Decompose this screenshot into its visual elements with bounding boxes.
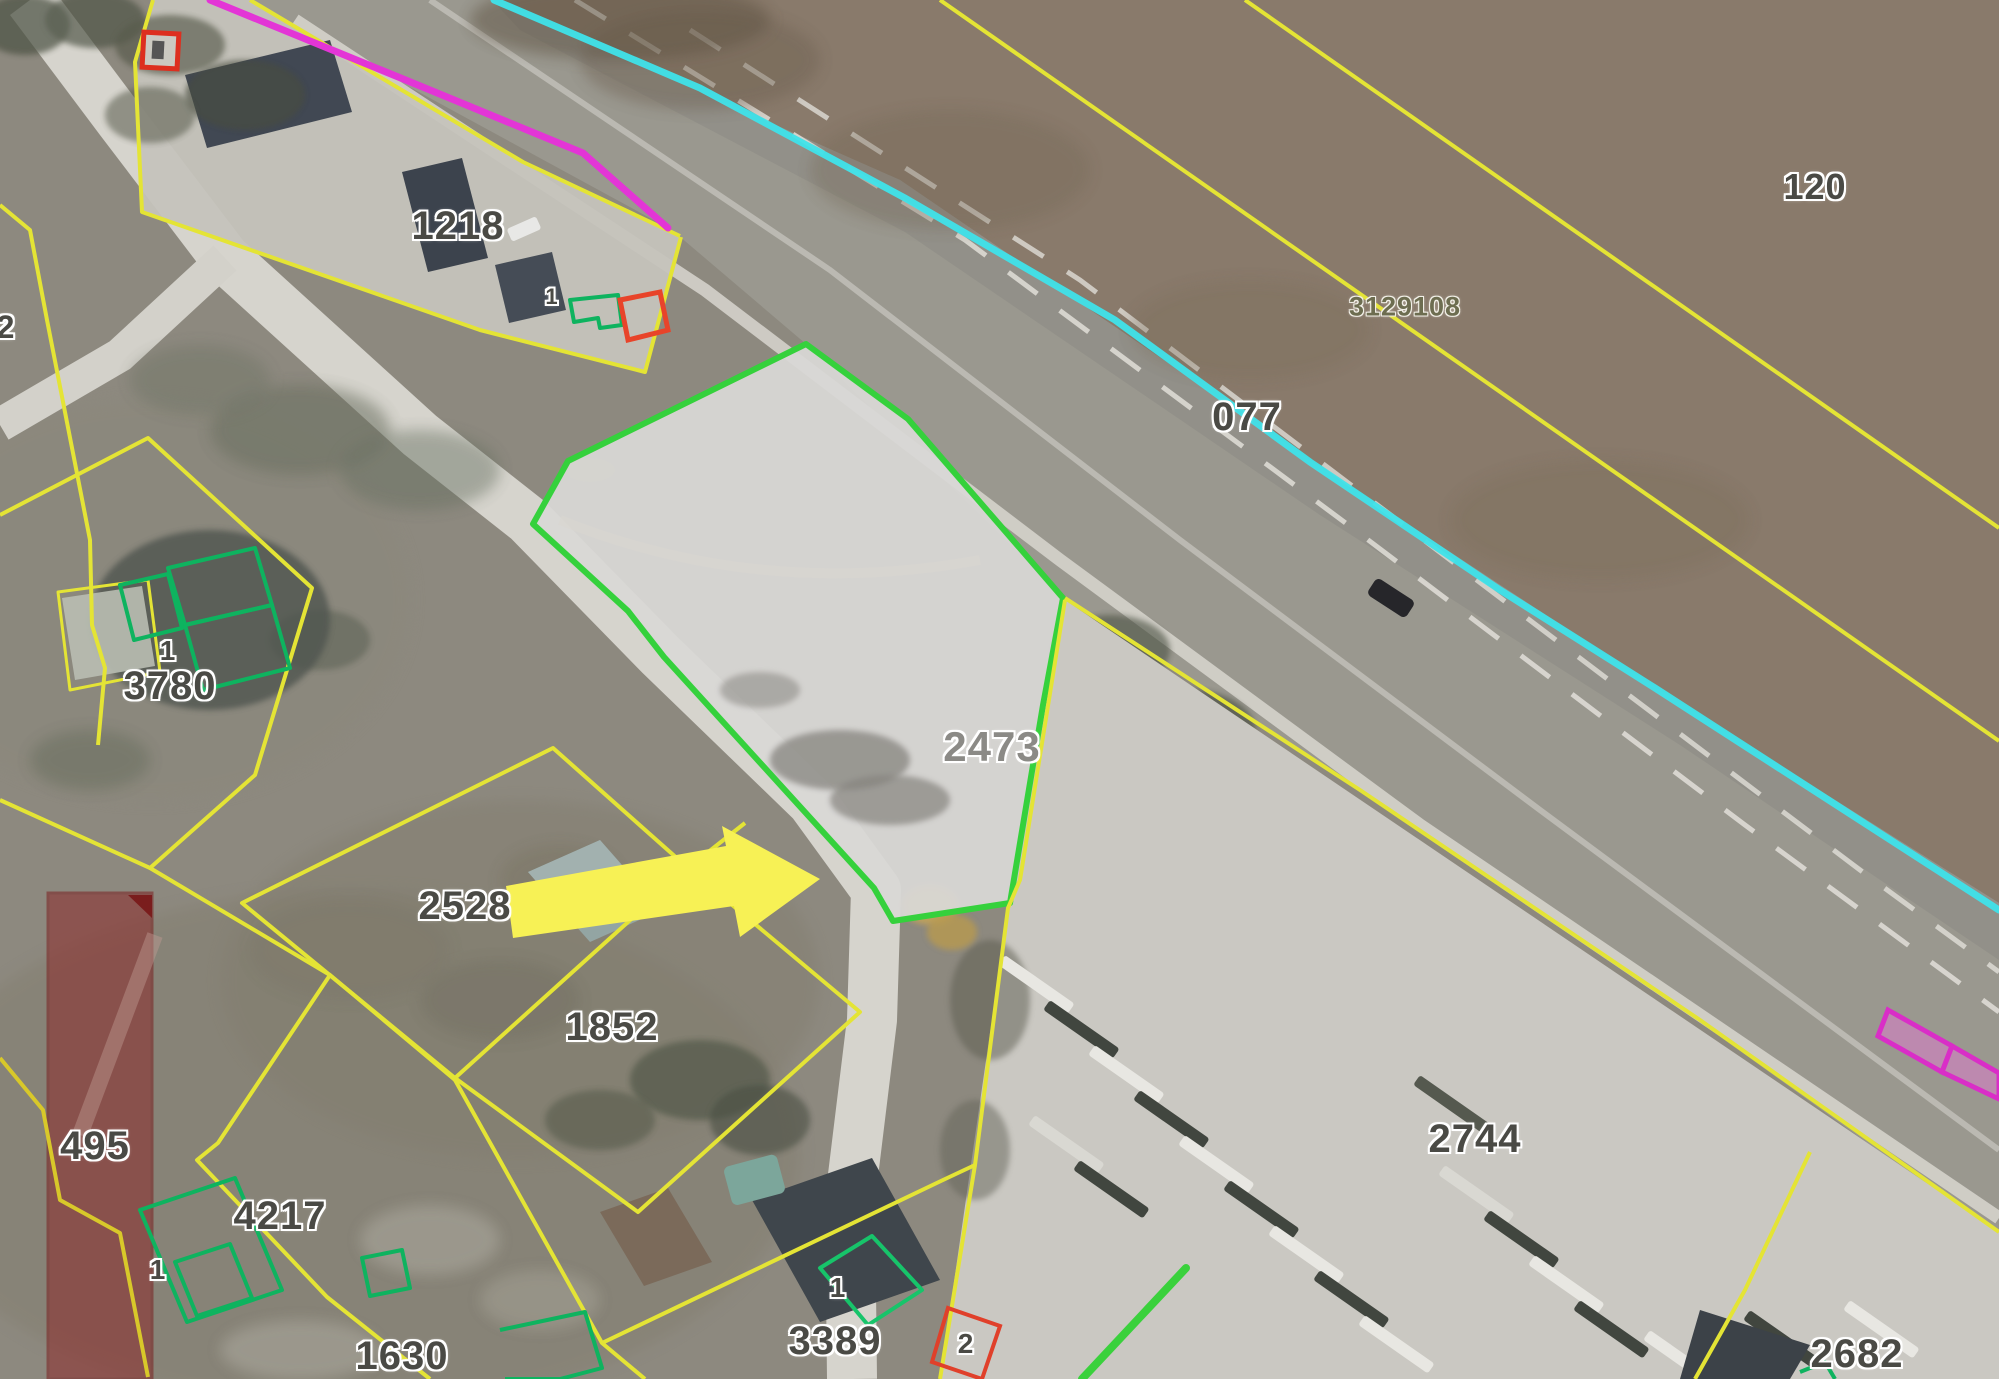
sand-pile bbox=[927, 914, 977, 950]
map-canvas[interactable] bbox=[0, 0, 1999, 1379]
greenhouse-roof bbox=[62, 586, 155, 680]
cadastral-map-screenshot: 1218120312910807721137802473252818524954… bbox=[0, 0, 1999, 1379]
restricted-building-495 bbox=[48, 893, 155, 1379]
